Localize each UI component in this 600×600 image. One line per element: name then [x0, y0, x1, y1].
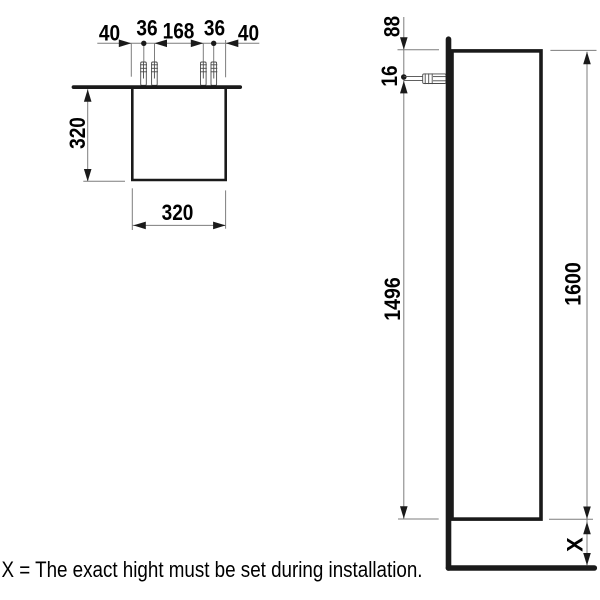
svg-text:88: 88	[380, 16, 405, 37]
svg-text:40: 40	[99, 21, 120, 46]
svg-text:16: 16	[377, 65, 402, 86]
svg-text:36: 36	[136, 16, 157, 41]
svg-text:36: 36	[204, 16, 225, 41]
svg-text:X = The exact hight must be se: X = The exact hight must be set during i…	[2, 557, 423, 582]
svg-text:1496: 1496	[380, 277, 405, 321]
svg-text:X: X	[562, 537, 587, 552]
svg-text:40: 40	[238, 21, 259, 46]
svg-text:168: 168	[163, 18, 195, 43]
svg-text:1600: 1600	[561, 262, 586, 306]
svg-text:320: 320	[162, 200, 194, 225]
svg-text:320: 320	[65, 117, 90, 149]
